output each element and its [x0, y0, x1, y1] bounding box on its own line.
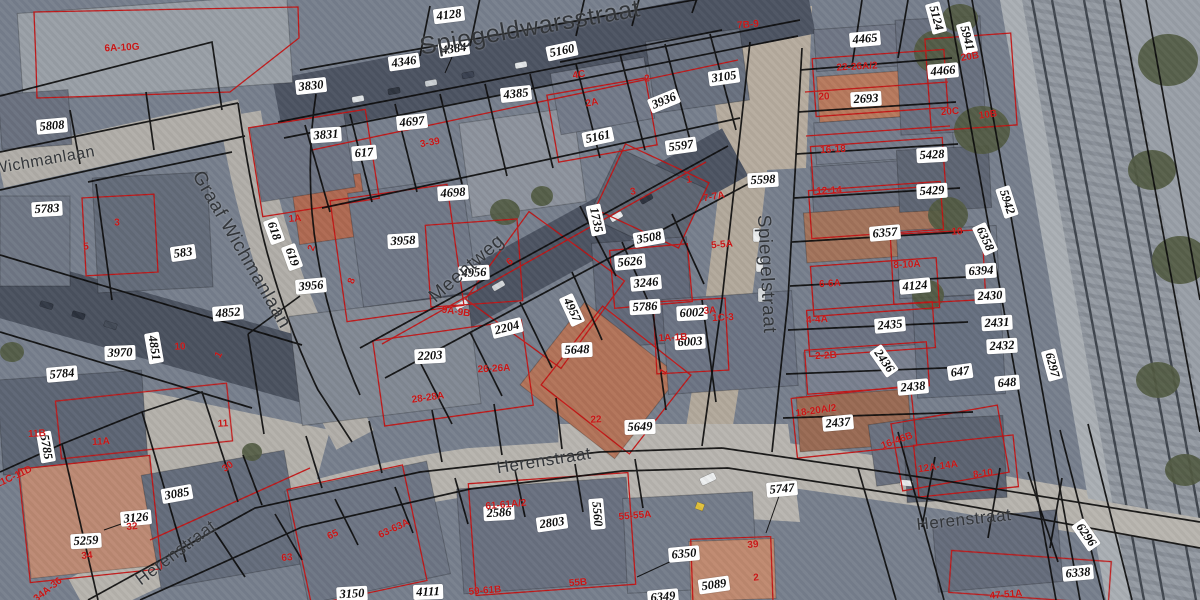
aerial-map[interactable]: 5808412843464384383038316174697469843855… — [0, 0, 1200, 600]
aerial-basemap — [0, 0, 1200, 600]
